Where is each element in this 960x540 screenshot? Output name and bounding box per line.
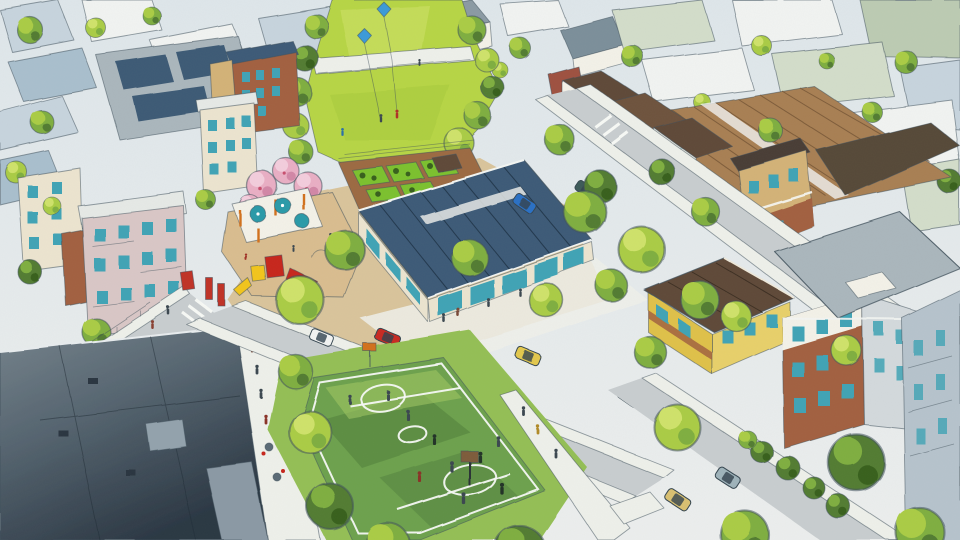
rendering-canvas [0, 0, 960, 540]
paper-grain-overlay [0, 0, 960, 540]
aerial-rendering [0, 0, 960, 540]
